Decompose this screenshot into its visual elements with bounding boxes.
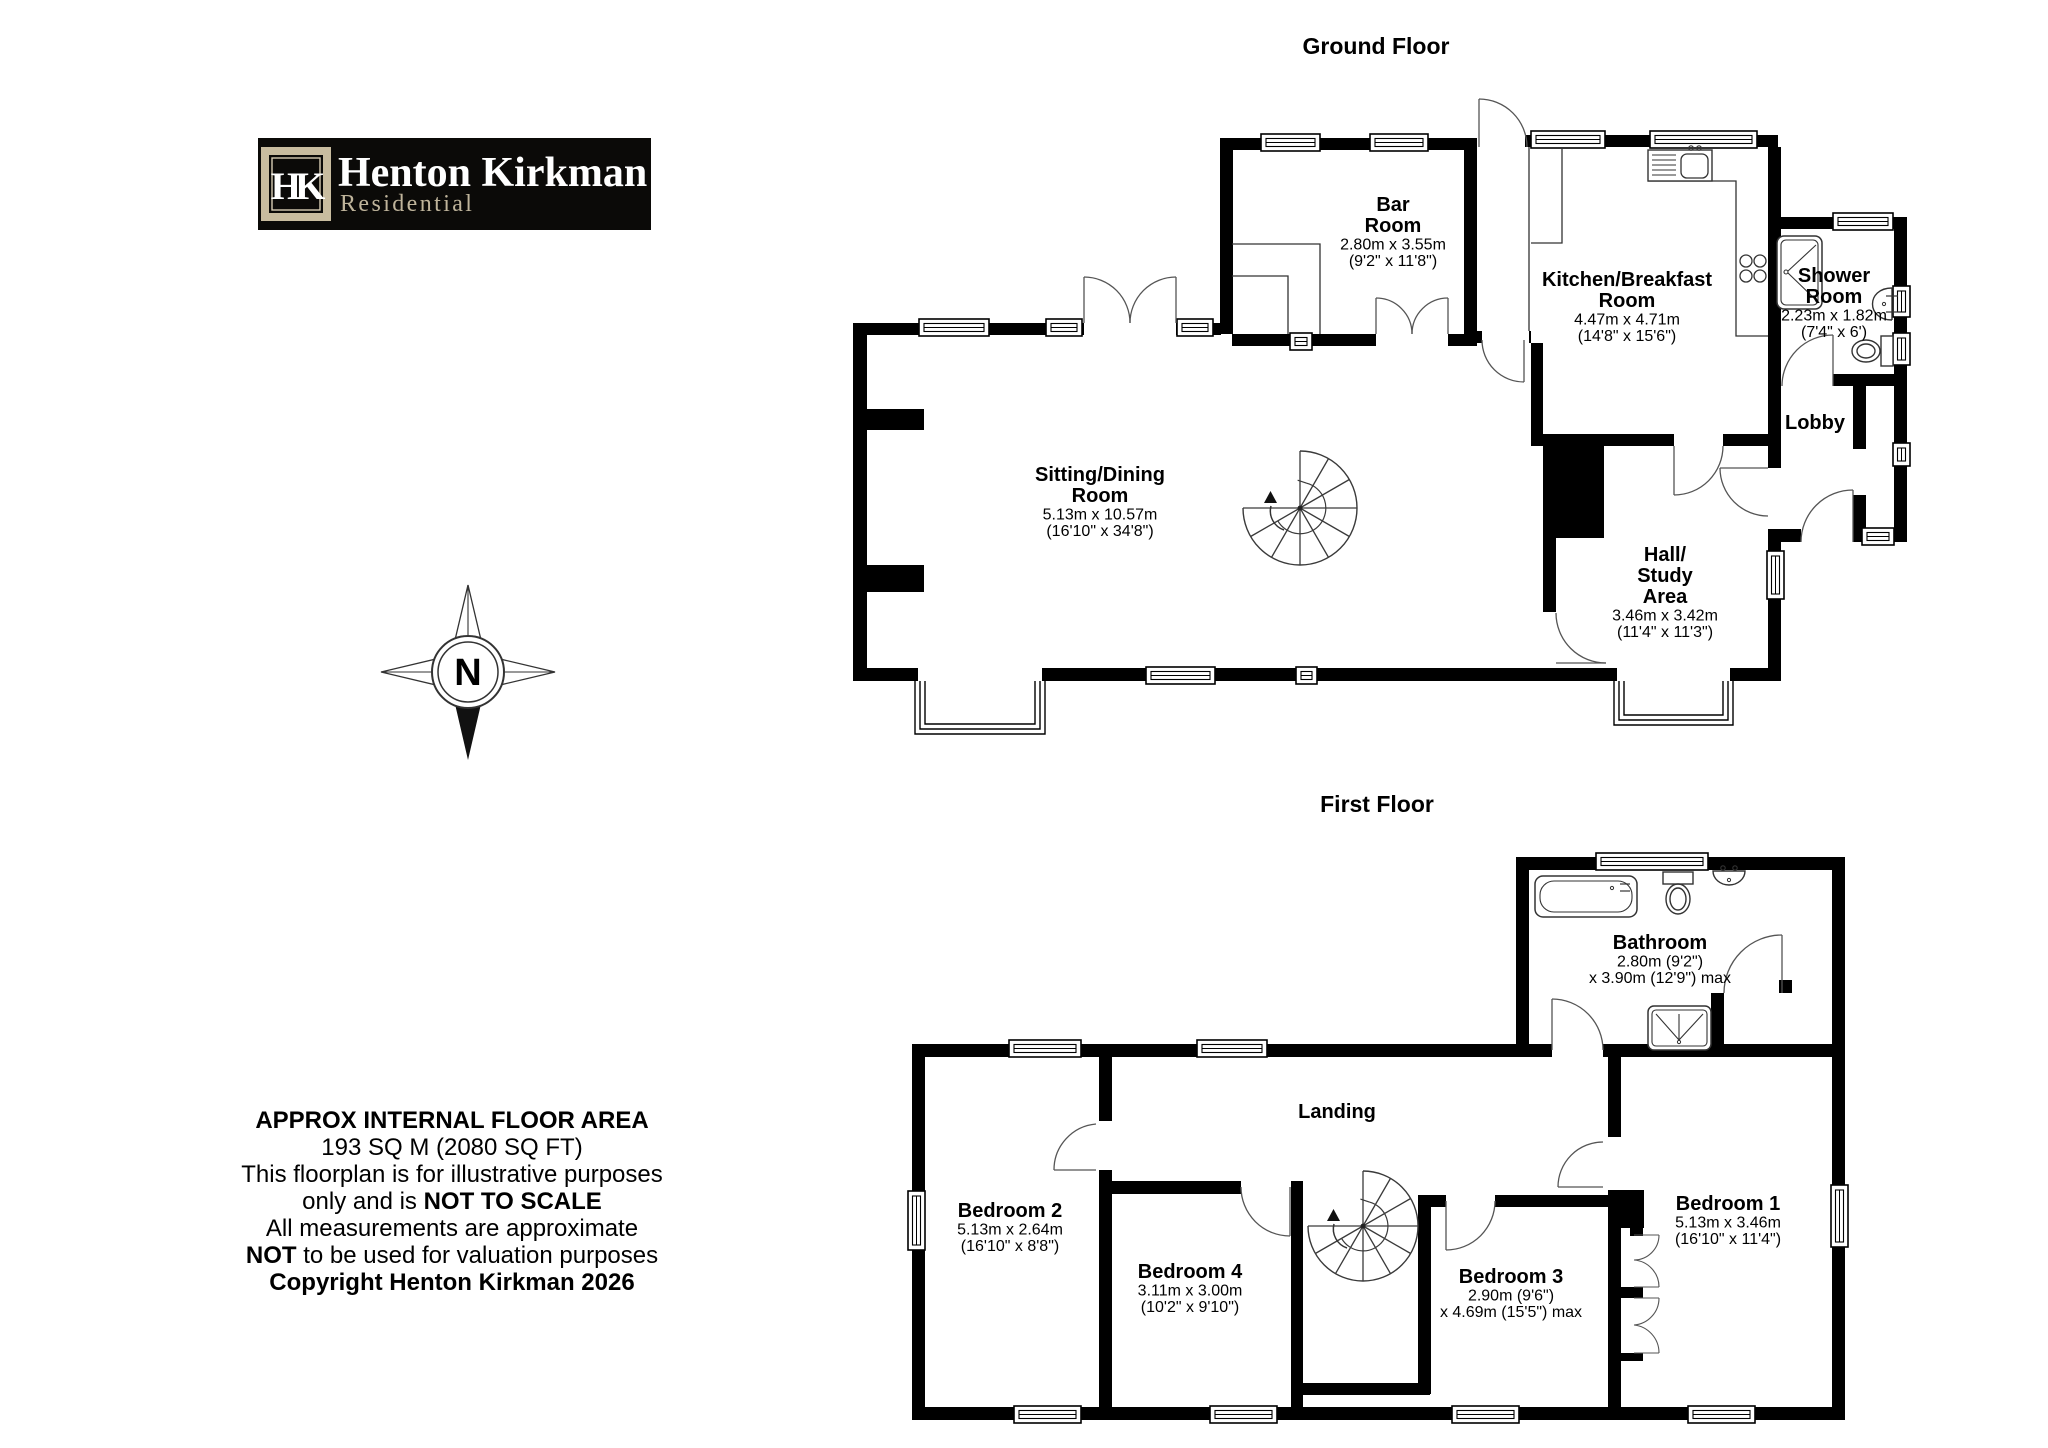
svg-text:193 SQ M (2080 SQ FT): 193 SQ M (2080 SQ FT) — [321, 1134, 582, 1161]
svg-text:Room: Room — [1599, 290, 1656, 312]
svg-text:2.80m x 3.55m: 2.80m x 3.55m — [1340, 237, 1446, 254]
svg-text:only and is NOT TO SCALE: only and is NOT TO SCALE — [302, 1188, 602, 1215]
svg-text:Shower: Shower — [1798, 265, 1870, 287]
svg-text:(7'4" x 6'): (7'4" x 6') — [1801, 324, 1867, 341]
svg-text:First Floor: First Floor — [1320, 791, 1434, 817]
svg-text:2.80m (9'2"): 2.80m (9'2") — [1617, 954, 1703, 971]
svg-text:Copyright Henton Kirkman 2026: Copyright Henton Kirkman 2026 — [269, 1269, 634, 1296]
svg-text:NOT to be used for valuation p: NOT to be used for valuation purposes — [246, 1242, 658, 1269]
svg-text:Ground Floor: Ground Floor — [1303, 33, 1450, 59]
svg-text:Landing: Landing — [1298, 1101, 1376, 1123]
svg-text:5.13m x 3.46m: 5.13m x 3.46m — [1675, 1215, 1781, 1232]
svg-text:3.46m x 3.42m: 3.46m x 3.42m — [1612, 608, 1718, 625]
svg-text:3.11m x 3.00m: 3.11m x 3.00m — [1138, 1283, 1243, 1300]
svg-text:APPROX INTERNAL FLOOR AREA: APPROX INTERNAL FLOOR AREA — [255, 1107, 648, 1134]
svg-text:Bedroom 3: Bedroom 3 — [1459, 1266, 1563, 1288]
svg-text:2.90m (9'6"): 2.90m (9'6") — [1468, 1288, 1554, 1305]
svg-text:All measurements are approxima: All measurements are approximate — [266, 1215, 638, 1242]
svg-text:Lobby: Lobby — [1785, 412, 1846, 434]
svg-text:(16'10" x 34'8"): (16'10" x 34'8") — [1046, 523, 1153, 540]
svg-text:Room: Room — [1072, 485, 1129, 507]
svg-text:5.13m x 10.57m: 5.13m x 10.57m — [1043, 507, 1158, 524]
svg-text:x 3.90m (12'9") max: x 3.90m (12'9") max — [1589, 970, 1731, 987]
svg-text:(9'2" x 11'8"): (9'2" x 11'8") — [1349, 253, 1437, 270]
svg-text:Bedroom 2: Bedroom 2 — [958, 1200, 1062, 1222]
svg-text:HK: HK — [271, 165, 326, 208]
svg-text:Bedroom 1: Bedroom 1 — [1676, 1193, 1780, 1215]
svg-text:Residential: Residential — [340, 191, 474, 217]
svg-text:Area: Area — [1643, 586, 1688, 608]
svg-text:(16'10" x 11'4"): (16'10" x 11'4") — [1675, 1231, 1781, 1248]
svg-text:Sitting/Dining: Sitting/Dining — [1035, 464, 1165, 486]
svg-text:Henton Kirkman: Henton Kirkman — [338, 150, 647, 196]
svg-text:x 4.69m (15'5") max: x 4.69m (15'5") max — [1440, 1304, 1582, 1321]
svg-text:This floorplan is for illustra: This floorplan is for illustrative purpo… — [241, 1161, 663, 1188]
svg-text:Room: Room — [1806, 286, 1863, 308]
svg-text:(14'8" x 15'6"): (14'8" x 15'6") — [1578, 328, 1676, 345]
svg-text:(16'10" x 8'8"): (16'10" x 8'8") — [961, 1238, 1059, 1255]
svg-text:Kitchen/Breakfast: Kitchen/Breakfast — [1542, 269, 1712, 291]
svg-text:Bedroom 4: Bedroom 4 — [1138, 1261, 1243, 1283]
svg-text:N: N — [454, 652, 481, 694]
svg-text:Study: Study — [1637, 565, 1693, 587]
svg-text:Hall/: Hall/ — [1644, 544, 1687, 566]
svg-text:2.23m x 1.82m: 2.23m x 1.82m — [1781, 308, 1887, 325]
svg-text:Bathroom: Bathroom — [1613, 932, 1707, 954]
svg-text:Room: Room — [1365, 215, 1422, 237]
svg-text:4.47m x 4.71m: 4.47m x 4.71m — [1574, 312, 1680, 329]
svg-text:(10'2" x 9'10"): (10'2" x 9'10") — [1141, 1299, 1239, 1316]
svg-text:(11'4" x 11'3"): (11'4" x 11'3") — [1617, 624, 1713, 641]
svg-text:Bar: Bar — [1376, 194, 1410, 216]
svg-text:5.13m x 2.64m: 5.13m x 2.64m — [957, 1222, 1063, 1239]
